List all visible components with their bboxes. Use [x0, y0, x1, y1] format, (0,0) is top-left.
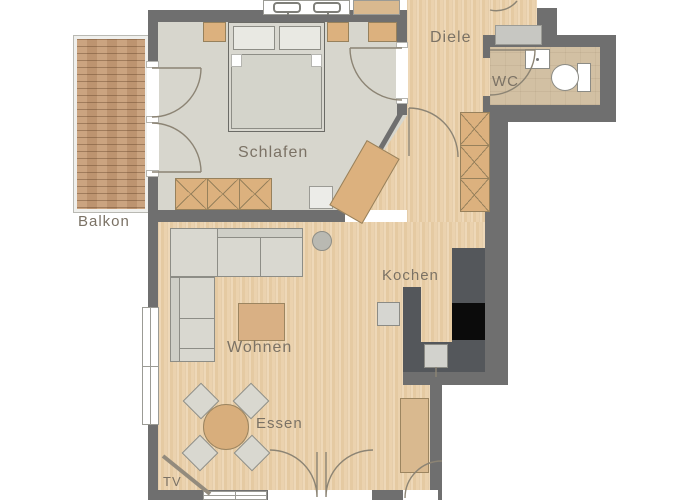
balcony-door-upper — [152, 68, 201, 117]
room-label-balkon: Balkon — [78, 213, 130, 230]
door-swing-overlay — [0, 0, 686, 500]
room-label-wc: WC — [492, 73, 519, 90]
room-label-schlafen: Schlafen — [238, 144, 308, 162]
terrace-door-right — [326, 450, 373, 497]
bottom-right-door — [405, 461, 442, 498]
terrace-door-left — [270, 450, 317, 497]
room-label-wohnen: Wohnen — [227, 339, 292, 357]
room-label-kochen: Kochen — [382, 267, 439, 284]
balcony-door-lower — [152, 123, 201, 172]
hall-door — [409, 108, 458, 157]
room-label-tv: TV — [163, 474, 182, 489]
room-label-diele: Diele — [430, 29, 471, 47]
room-label-essen: Essen — [256, 415, 303, 432]
bedroom-door — [350, 48, 402, 100]
entrance-door — [490, 1, 517, 11]
floor-plan: Balkon Schlafen Diele WC Kochen Wohnen E… — [0, 0, 686, 500]
